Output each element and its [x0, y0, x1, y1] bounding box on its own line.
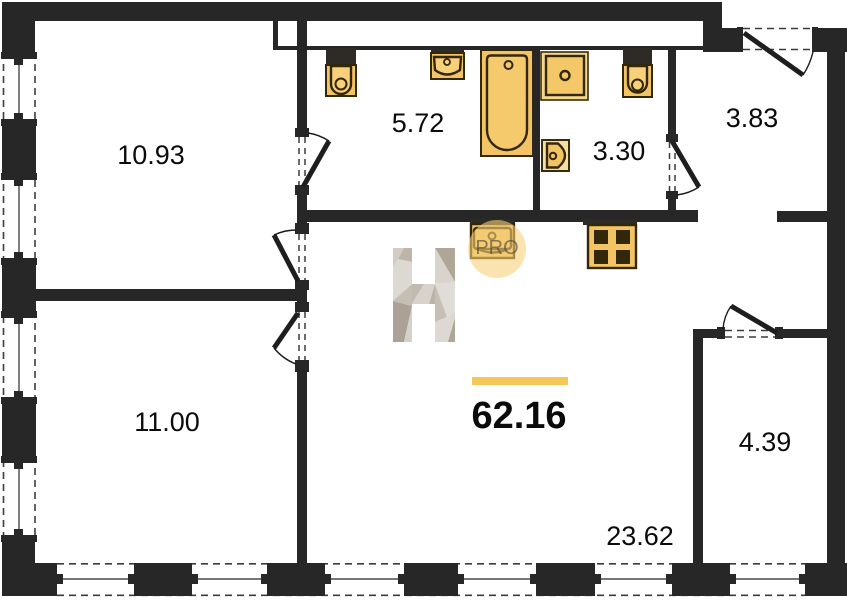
svg-text:10.93: 10.93 — [117, 140, 185, 170]
svg-text:3.30: 3.30 — [593, 136, 646, 166]
svg-text:PRO: PRO — [475, 237, 518, 259]
svg-text:3.83: 3.83 — [726, 103, 779, 133]
svg-text:11.00: 11.00 — [134, 407, 200, 437]
svg-text:4.39: 4.39 — [739, 427, 792, 457]
svg-text:5.72: 5.72 — [392, 108, 445, 138]
svg-text:23.62: 23.62 — [606, 521, 674, 551]
svg-text:62.16: 62.16 — [471, 395, 566, 437]
